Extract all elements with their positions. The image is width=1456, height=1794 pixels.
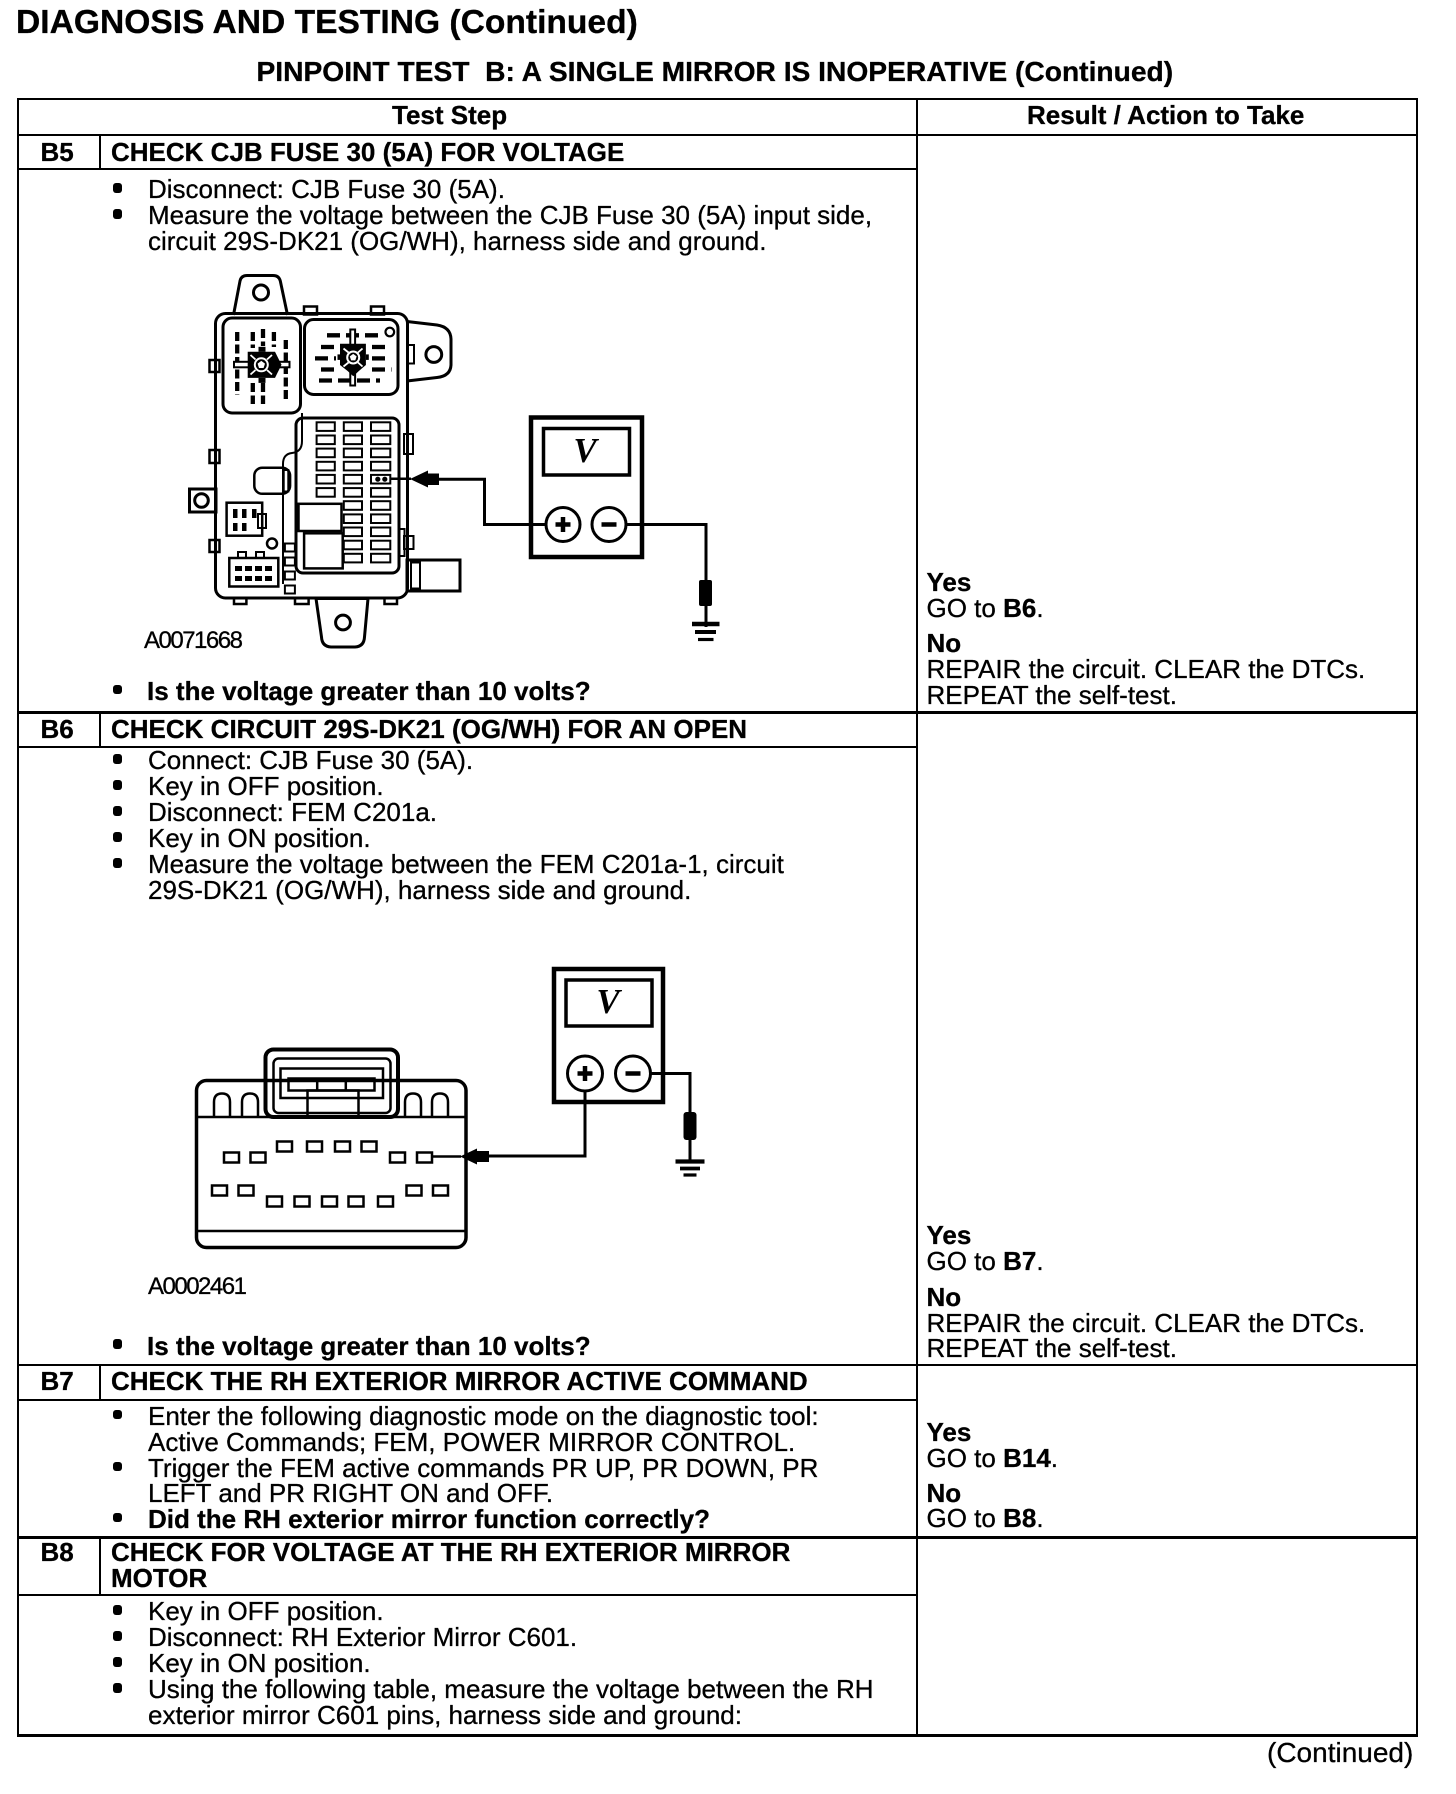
svg-text:V: V xyxy=(573,431,599,470)
svg-text:V: V xyxy=(596,982,622,1021)
